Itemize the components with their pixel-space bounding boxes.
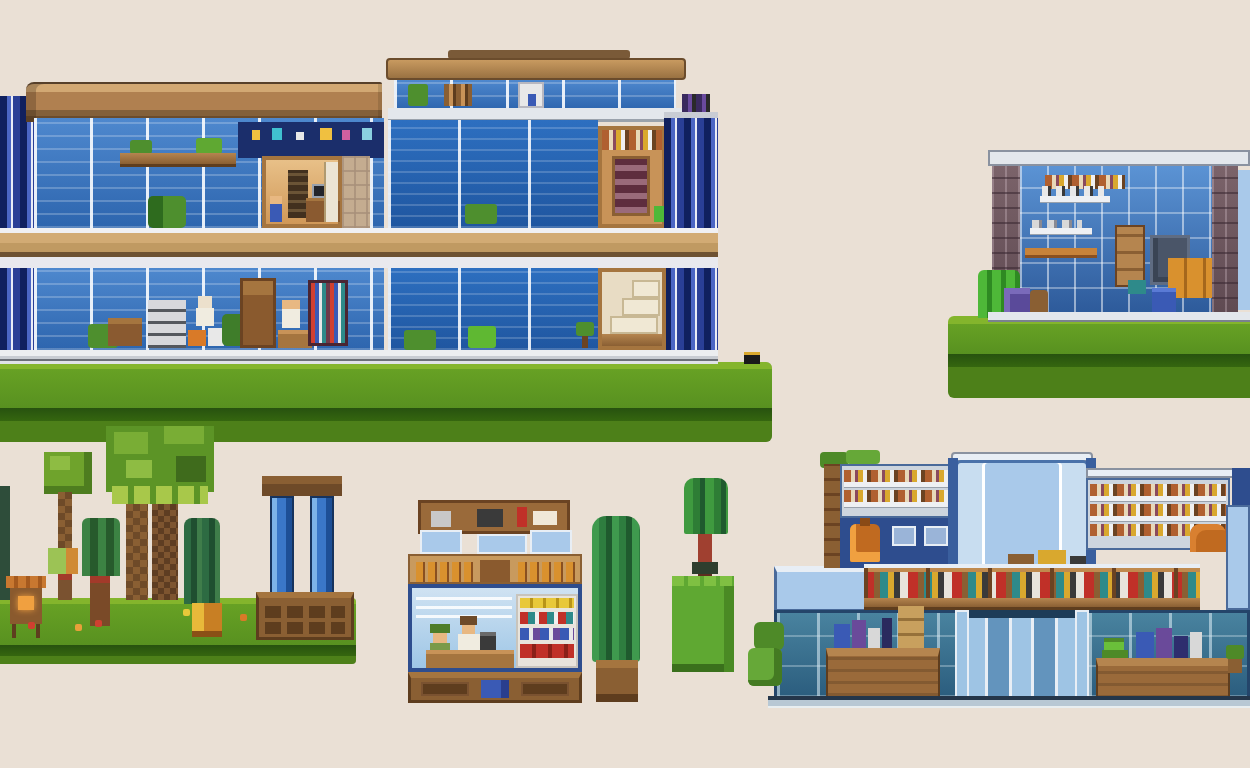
pillar-cap — [302, 476, 342, 496]
lamp-knob — [860, 518, 870, 526]
tree-d-base — [192, 603, 222, 637]
tree-b-canopy — [106, 426, 214, 492]
upper-plant-a — [130, 140, 152, 154]
shelf-line — [1090, 516, 1226, 522]
mall-right-panel — [1226, 505, 1250, 610]
mall-leftwing-slab — [774, 566, 868, 612]
flower — [28, 622, 35, 629]
tree-d-canopy — [184, 518, 220, 604]
grass-dark-band — [948, 354, 1250, 367]
customer-head — [433, 633, 447, 643]
storage-shelf-stack — [148, 300, 186, 348]
storage-shelf-a-items — [1042, 186, 1104, 196]
tree-a-cube — [48, 548, 78, 574]
bonsai-tree — [576, 322, 594, 348]
stacked-boxes — [898, 606, 924, 648]
cafe-storefront — [408, 584, 582, 672]
lit-window — [272, 128, 282, 140]
pillar-base-cabinet — [256, 592, 354, 640]
tree-b-shadow — [176, 456, 206, 482]
grass-platform-right — [948, 316, 1250, 398]
furnace-lamp — [850, 524, 880, 562]
penthouse-roof — [386, 58, 686, 80]
band-window — [924, 526, 948, 546]
tree-c-canopy — [82, 518, 120, 576]
tree-b-highlight — [164, 426, 204, 444]
stall-leg — [36, 624, 40, 638]
cafe-blue-block — [420, 530, 462, 554]
bookshelf — [308, 280, 348, 346]
menu-board — [288, 170, 308, 218]
grass-block-notches — [672, 576, 734, 586]
cafe-base — [408, 672, 582, 703]
sign-item — [477, 509, 503, 527]
stair-room — [598, 268, 666, 350]
tree-a-canopy — [44, 452, 92, 494]
vendor-body — [196, 308, 214, 326]
coffee-machine — [480, 632, 496, 650]
mall-topleft-shelves — [840, 464, 958, 518]
stair-step-low — [610, 316, 658, 334]
sapling-grass-block — [672, 576, 734, 672]
maroon-window-shelves — [612, 156, 650, 216]
bonsai-trunk — [582, 336, 588, 348]
sapling-canopy — [684, 478, 728, 534]
sign-item — [431, 511, 451, 527]
clerk-head — [1104, 638, 1124, 650]
drawer-row — [265, 606, 345, 618]
penthouse-door — [518, 82, 544, 108]
tan-brick-wall — [342, 156, 370, 228]
storage-shelf-a — [1040, 196, 1110, 203]
shelf-line — [1090, 496, 1226, 502]
wardrobe — [240, 278, 276, 348]
tree-c-trunk — [90, 576, 110, 626]
stair-floor — [602, 334, 662, 346]
mall-topleft-blueband — [840, 518, 958, 568]
storage-shelf-b-items — [1032, 220, 1082, 228]
bottle-shelf — [408, 554, 582, 584]
room-top-shelf-items — [602, 130, 662, 150]
mall-roof-bush — [846, 450, 880, 464]
crate-tower — [1115, 225, 1145, 287]
counter-item — [882, 618, 892, 648]
lower-right-plant-b — [468, 326, 496, 348]
shelf-items-row — [844, 490, 954, 502]
flower — [95, 620, 102, 627]
counter-item — [1190, 632, 1202, 660]
window-blinds — [416, 592, 512, 618]
lower-right-plant-a — [404, 330, 436, 350]
sapling-root-collar — [692, 562, 718, 574]
storage-edge-panel — [1238, 170, 1250, 310]
shelf-line — [844, 502, 954, 508]
mezzanine — [864, 564, 1200, 610]
base-blue-box — [481, 680, 509, 698]
office-main-roof — [26, 82, 382, 122]
copper-vat — [1190, 524, 1226, 552]
drawer-row — [265, 622, 345, 634]
stall-awning — [6, 576, 46, 588]
shelf-line — [844, 482, 954, 488]
counter-item — [1174, 636, 1188, 660]
storage-work-desk — [1025, 248, 1097, 258]
tree-a-highlight — [50, 456, 70, 470]
sign-item — [533, 511, 557, 525]
band-window — [892, 526, 916, 546]
office-room — [262, 156, 342, 228]
mall-wood-column — [824, 464, 840, 568]
bottle-row — [416, 562, 474, 582]
lit-window — [342, 130, 350, 140]
reception-desk — [278, 330, 312, 348]
supply-sack — [1030, 290, 1048, 312]
customer-hat — [430, 624, 450, 633]
counter-item — [1156, 628, 1172, 660]
cafe-sign-shelf — [418, 500, 570, 534]
lower-sofa — [108, 318, 142, 346]
lit-window — [252, 130, 260, 140]
bottle-row — [518, 562, 578, 582]
bookshelf-books — [311, 283, 345, 343]
flower — [75, 624, 82, 631]
shelf-items-row — [1090, 484, 1226, 496]
penthouse-bookshelf — [444, 84, 472, 106]
counter-item — [868, 628, 880, 648]
counter-item — [1136, 632, 1154, 660]
counter-items-left — [834, 618, 892, 648]
barista-head — [462, 625, 475, 634]
base-drawer — [421, 682, 469, 696]
tree-b-trunk-left — [126, 504, 148, 600]
floor-slab — [0, 228, 718, 268]
mall-right-column — [1232, 468, 1250, 508]
lit-window — [296, 132, 304, 140]
mall-entrance — [963, 610, 1087, 700]
flower — [240, 614, 247, 621]
pixel-art-scene — [0, 0, 1250, 768]
glass-pillar-left — [262, 476, 302, 596]
tree-b-highlight — [114, 432, 148, 454]
office-building — [0, 50, 772, 366]
sapling-tree — [672, 478, 734, 672]
rooftop-books — [682, 94, 710, 112]
grass-lower-band — [948, 367, 1250, 398]
potted-plant-right — [1226, 645, 1244, 673]
office-base-strip — [0, 350, 718, 364]
storage-room — [988, 150, 1250, 322]
grass-dark-band — [0, 408, 772, 421]
rack-row-blue — [520, 628, 574, 640]
upper-navy-band — [238, 122, 384, 158]
glass-pillar-right — [302, 476, 342, 596]
cafe-blue-block — [530, 530, 572, 554]
grass-lower-band — [0, 656, 356, 664]
base-drawer — [521, 682, 569, 696]
barista — [458, 616, 480, 652]
blue-box — [1152, 288, 1176, 314]
crate-orange — [188, 330, 206, 346]
ground-box — [744, 352, 760, 364]
stall-leg — [12, 624, 16, 638]
tree-a-stem — [58, 574, 72, 600]
vendor-head — [198, 296, 212, 308]
tree-b-trunk-right — [152, 504, 178, 600]
stair-step-mid — [622, 298, 660, 316]
reception-clerk — [282, 300, 300, 328]
counter-item — [834, 624, 850, 648]
market-vendor — [188, 296, 226, 348]
grass-dark-band — [0, 645, 356, 656]
stall-fire-glow — [18, 596, 34, 610]
bonsai-foliage — [576, 322, 594, 336]
upper-plant-b — [196, 138, 222, 154]
shelf-items-row — [844, 470, 954, 482]
mall-topright-roof — [1086, 468, 1246, 478]
stair-step-top — [632, 280, 660, 298]
bush-bottom — [748, 648, 782, 686]
flower — [183, 609, 190, 616]
rack-row-amber — [520, 598, 574, 608]
pillar-shaft — [270, 496, 294, 594]
mall-bushes-left — [748, 622, 786, 686]
office-left-edge-column — [0, 96, 34, 352]
upper-wall-shelf — [120, 153, 236, 167]
storage-brick-pillar-right — [1212, 166, 1238, 314]
tree-b-fruit-row — [112, 486, 208, 504]
shelf-items-row — [1090, 504, 1226, 516]
pillar-cap — [262, 476, 302, 496]
bush-top — [754, 622, 784, 650]
upper-floor-plant — [148, 196, 186, 228]
penthouse-plant — [408, 84, 428, 106]
mall-ground-strip — [768, 696, 1250, 708]
tree-a-trunk — [58, 492, 72, 550]
barista-hat — [460, 616, 477, 625]
cafe-blue-block — [477, 534, 527, 554]
upper-right-plant — [465, 204, 497, 224]
office-person — [270, 196, 282, 222]
tree-b-highlight — [126, 460, 152, 478]
counter-item — [852, 620, 866, 648]
penthouse-figure — [528, 94, 536, 106]
entrance-pillar-right — [1075, 610, 1089, 700]
park-group — [0, 426, 360, 666]
cafe-counter — [426, 650, 514, 668]
grass-body — [948, 324, 1250, 354]
office-door — [324, 162, 338, 222]
pillar-shaft — [310, 496, 334, 594]
storage-floor-strip — [988, 312, 1250, 322]
plant-pot — [1228, 659, 1242, 673]
rack-row-red — [520, 644, 574, 658]
lit-window — [320, 128, 332, 140]
storage-roof-slab — [988, 150, 1250, 166]
teal-box — [1128, 280, 1146, 294]
cypress-pot — [596, 660, 638, 702]
storage-shelf-b — [1030, 228, 1092, 235]
cypress-tree — [592, 516, 640, 702]
product-rack — [516, 594, 578, 668]
entrance-pillar-left — [955, 610, 969, 700]
rack-row-mixed — [520, 612, 574, 624]
market-stall — [6, 576, 46, 638]
cafe-shop — [405, 500, 590, 704]
shopping-mall — [748, 450, 1250, 712]
cypress-foliage — [592, 516, 640, 662]
lit-window — [362, 128, 372, 140]
shelf-center-box — [480, 560, 510, 582]
mall-counter-left — [826, 648, 940, 698]
wood-room-upper — [598, 126, 666, 228]
grass-body — [0, 369, 772, 408]
counter-items-right — [1136, 628, 1206, 660]
mall-counter-right — [1096, 658, 1230, 700]
sign-item — [517, 507, 527, 527]
plant-leaves — [1226, 645, 1244, 659]
